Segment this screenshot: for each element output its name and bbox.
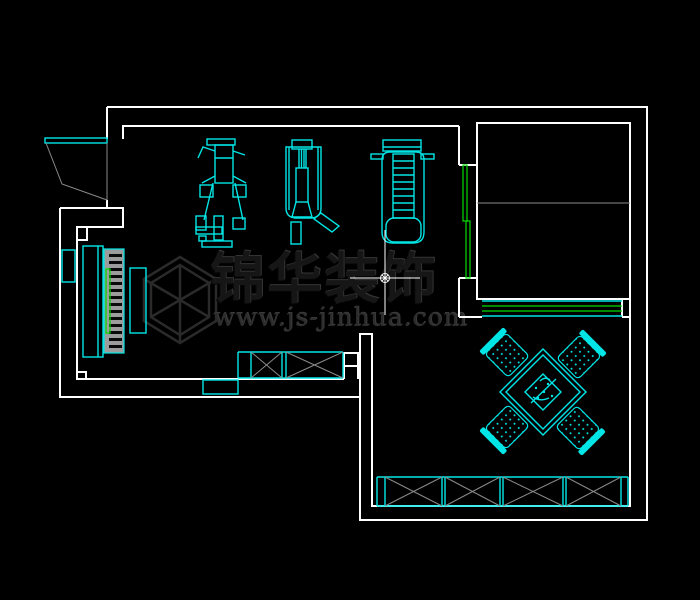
bedroom-sliding-door: [463, 165, 470, 278]
dining-set: [479, 327, 607, 456]
piano-with-keys: [62, 246, 124, 357]
dining-chair-se: [554, 404, 606, 456]
treadmill: [371, 140, 434, 243]
dining-chair-nw: [479, 327, 531, 379]
entry-swing-door: [45, 138, 107, 200]
dining-chair-ne: [555, 329, 607, 381]
crossed-storage-cabinets: [377, 477, 628, 506]
floor-plan-linework: [0, 0, 700, 600]
piano-bench: [130, 268, 146, 333]
low-cabinet: [203, 380, 238, 394]
crossed-wardrobe: [238, 352, 343, 378]
walls: [60, 107, 647, 520]
exercise-machine: [196, 139, 246, 247]
cad-floor-plan: 锦华装饰 www.js-jinhua.com: [0, 0, 700, 600]
dining-chair-sw: [479, 403, 531, 455]
pulldown-machine: [286, 140, 339, 244]
bedroom-window-band: [482, 301, 622, 316]
